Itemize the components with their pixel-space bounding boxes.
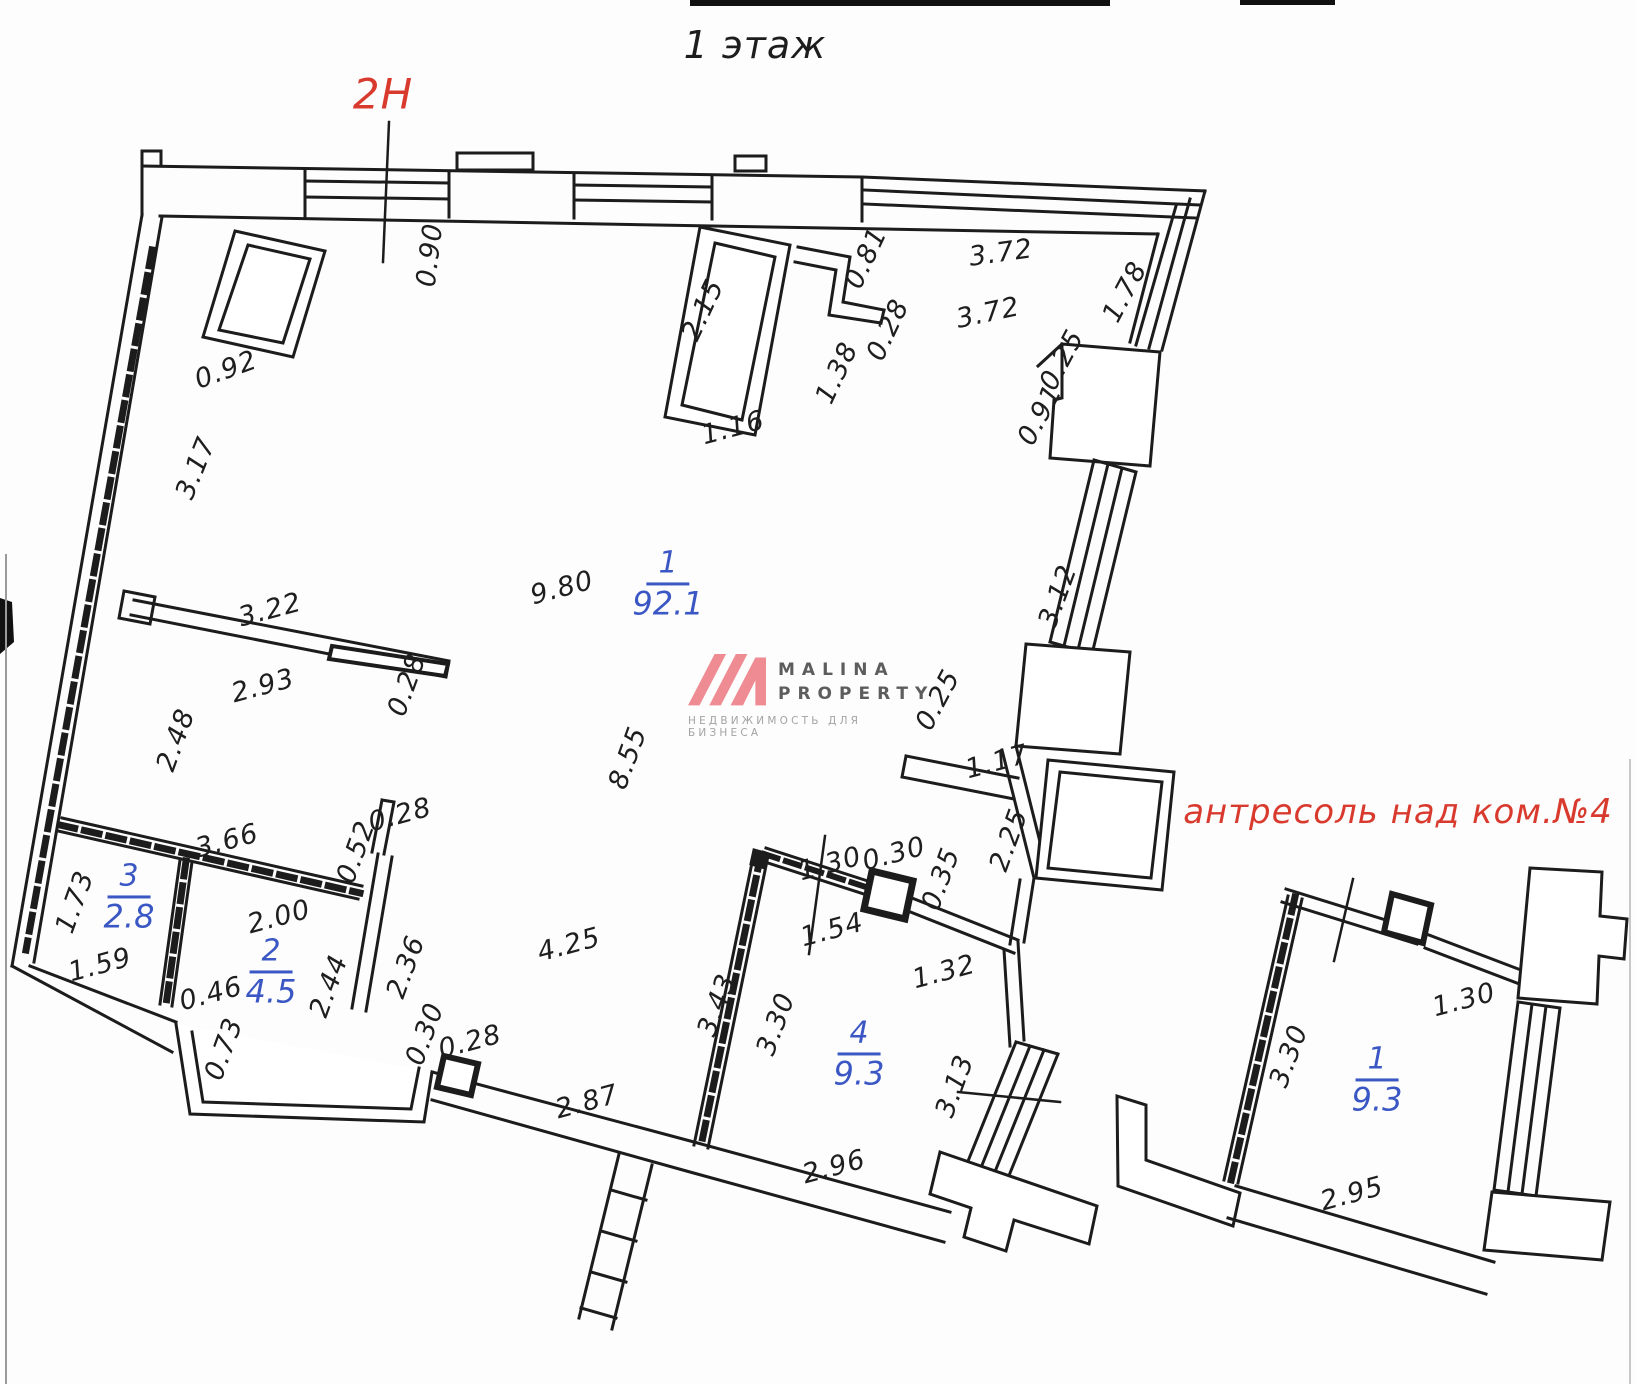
room-area: 9.3 — [1352, 1083, 1403, 1117]
room-area: 92.1 — [632, 587, 703, 621]
survey-tick — [383, 122, 389, 262]
scan-artifact — [1240, 0, 1335, 5]
room-area: 2.8 — [104, 900, 155, 934]
room-label: 192.1 — [632, 547, 703, 620]
room-number: 3 — [107, 860, 150, 898]
logo-tagline: НЕДВИЖИМОСТЬ ДЛЯ БИЗНЕСА — [688, 715, 923, 739]
room-area: 9.3 — [834, 1057, 885, 1091]
room-number: 4 — [837, 1017, 880, 1055]
room-number: 2 — [249, 935, 292, 973]
watermark-logo: MALINA PROPERTY НЕДВИЖИМОСТЬ ДЛЯ БИЗНЕСА — [688, 645, 923, 739]
floor-title: 1 этаж — [684, 23, 827, 67]
zone-label: 2Н — [353, 70, 413, 119]
room-label: 32.8 — [104, 860, 155, 933]
logo-brand-top: MALINA — [778, 658, 934, 683]
scan-artifact — [690, 0, 1110, 6]
room-label: 19.3 — [1352, 1043, 1403, 1116]
scanned-floorplan-page: { "title": "1 этаж", "zone_label": "2Н",… — [0, 0, 1636, 1384]
mezzanine-label: антресоль над ком.№4 — [1183, 792, 1613, 832]
room-label: 24.5 — [246, 935, 297, 1008]
room-number: 1 — [646, 547, 689, 585]
room-number: 1 — [1355, 1043, 1398, 1081]
room-label: 49.3 — [834, 1017, 885, 1090]
malina-logo-icon — [688, 645, 766, 709]
stairs-symbol — [579, 1154, 652, 1329]
room-area: 4.5 — [246, 975, 297, 1009]
logo-brand-bottom: PROPERTY — [778, 682, 934, 707]
